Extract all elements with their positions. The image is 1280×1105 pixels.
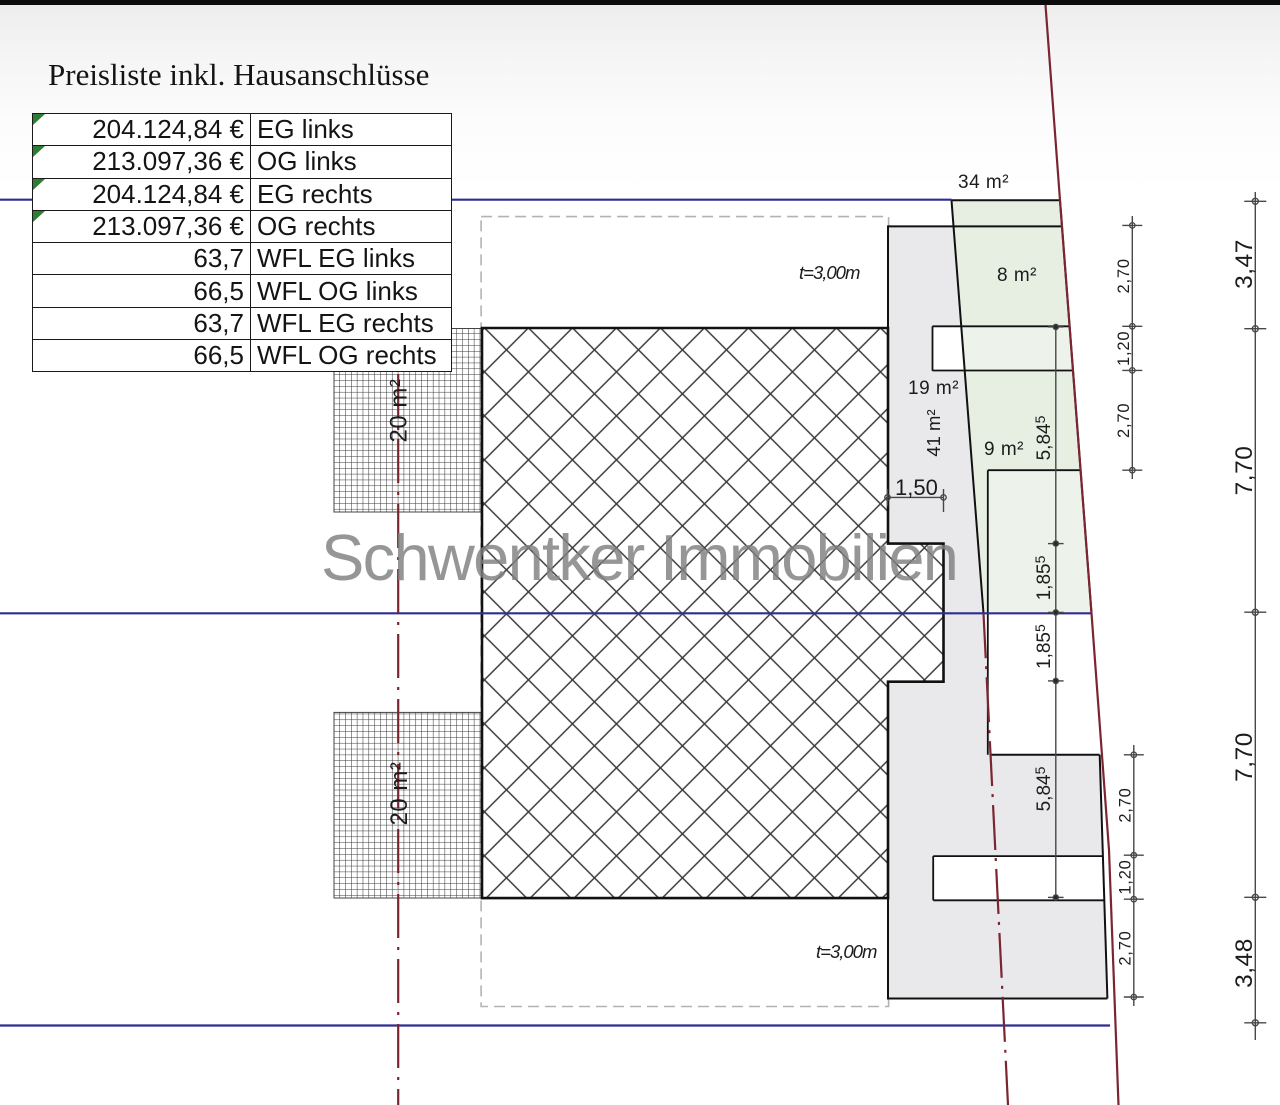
- svg-text:1,855: 1,855: [1032, 624, 1055, 669]
- svg-text:3,48: 3,48: [1231, 938, 1258, 988]
- svg-text:7,70: 7,70: [1231, 732, 1258, 782]
- svg-text:1,50: 1,50: [895, 475, 938, 500]
- svg-text:2,70: 2,70: [1115, 403, 1133, 438]
- svg-text:34 m²: 34 m²: [958, 172, 1009, 193]
- svg-text:9 m²: 9 m²: [984, 439, 1024, 460]
- svg-text:20 m²: 20 m²: [386, 379, 413, 443]
- svg-text:19 m²: 19 m²: [908, 378, 959, 399]
- svg-text:20 m²: 20 m²: [386, 762, 413, 826]
- svg-text:2,70: 2,70: [1117, 787, 1135, 822]
- svg-text:1,20: 1,20: [1115, 331, 1133, 366]
- svg-text:2,70: 2,70: [1115, 258, 1133, 293]
- svg-text:t=3,00m: t=3,00m: [816, 941, 877, 962]
- svg-text:1,20: 1,20: [1117, 859, 1135, 894]
- svg-text:t=3,00m: t=3,00m: [799, 262, 860, 283]
- svg-text:2,70: 2,70: [1117, 930, 1135, 965]
- svg-text:3,47: 3,47: [1231, 239, 1258, 289]
- svg-text:41 m²: 41 m²: [923, 409, 944, 456]
- svg-text:7,70: 7,70: [1231, 446, 1258, 496]
- svg-text:8 m²: 8 m²: [997, 265, 1037, 286]
